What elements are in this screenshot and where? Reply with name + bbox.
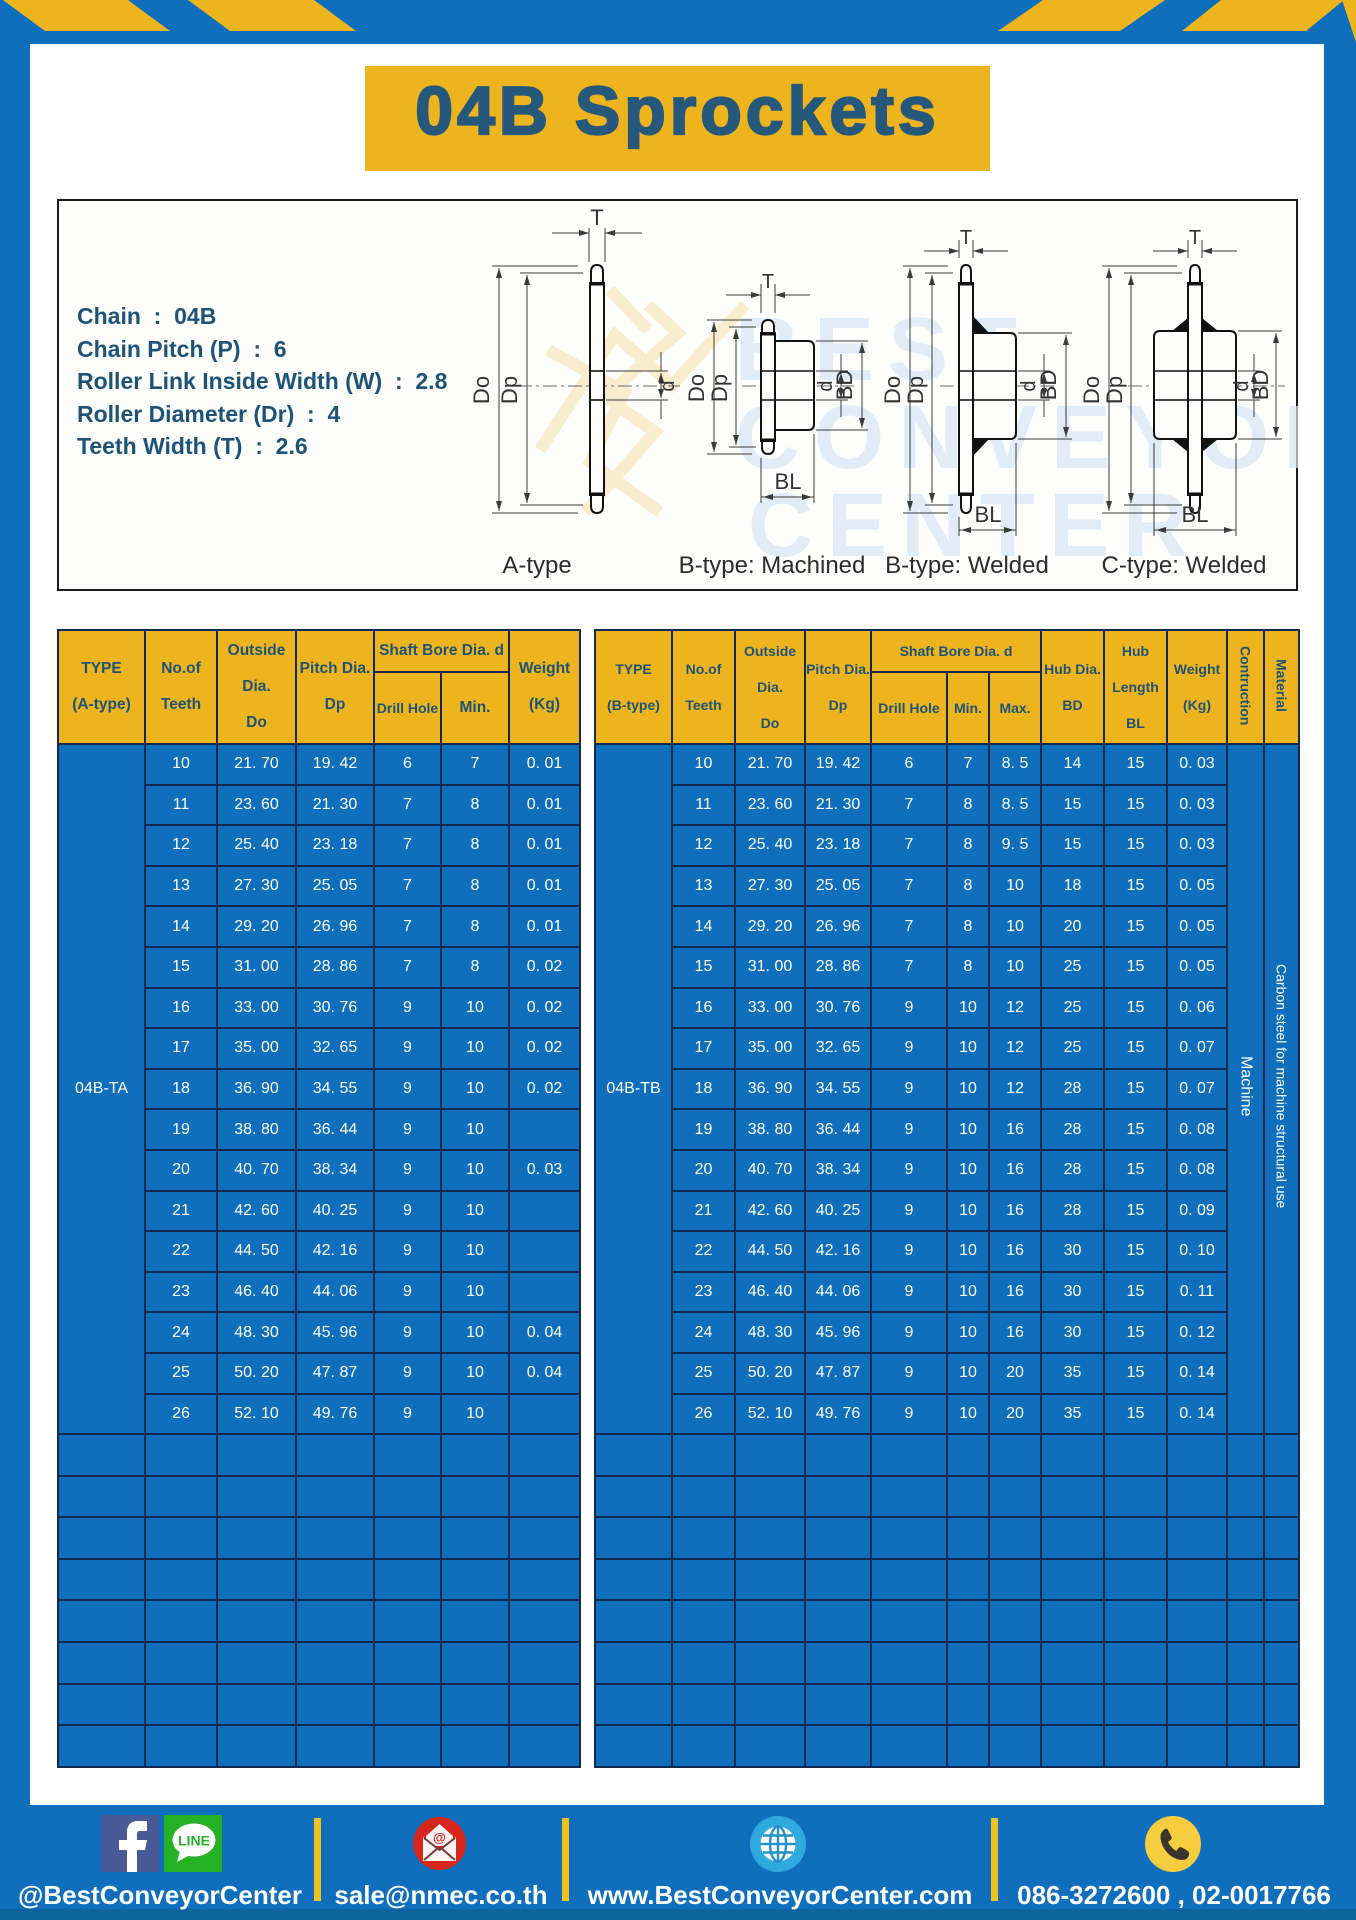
svg-text:d: d: [657, 380, 679, 391]
svg-text:B-type: Welded: B-type: Welded: [885, 552, 1049, 579]
svg-text:Do: Do: [469, 376, 494, 404]
svg-text:Do: Do: [1079, 376, 1104, 404]
svg-text:BD: BD: [1248, 370, 1273, 401]
svg-text:@: @: [433, 1830, 446, 1845]
svg-text:T: T: [1189, 227, 1201, 249]
svg-text:Dp: Dp: [1102, 376, 1127, 404]
svg-text:BL: BL: [775, 469, 802, 494]
svg-text:BL: BL: [975, 502, 1002, 527]
svg-text:BL: BL: [1182, 502, 1209, 527]
svg-text:Dp: Dp: [497, 376, 522, 404]
svg-text:BD: BD: [832, 370, 857, 401]
svg-text:Do: Do: [880, 376, 905, 404]
svg-text:Do: Do: [684, 374, 709, 402]
svg-text:C-type: Welded: C-type: Welded: [1102, 552, 1267, 579]
svg-text:BD: BD: [1036, 370, 1061, 401]
svg-text:A-type: A-type: [502, 552, 571, 579]
svg-text:T: T: [960, 227, 972, 249]
svg-text:LINE: LINE: [178, 1833, 210, 1849]
svg-text:T: T: [590, 205, 603, 230]
svg-text:Dp: Dp: [707, 374, 732, 402]
svg-text:T: T: [762, 271, 774, 293]
svg-text:B-type: Machined: B-type: Machined: [679, 552, 866, 579]
svg-text:Dp: Dp: [903, 376, 928, 404]
